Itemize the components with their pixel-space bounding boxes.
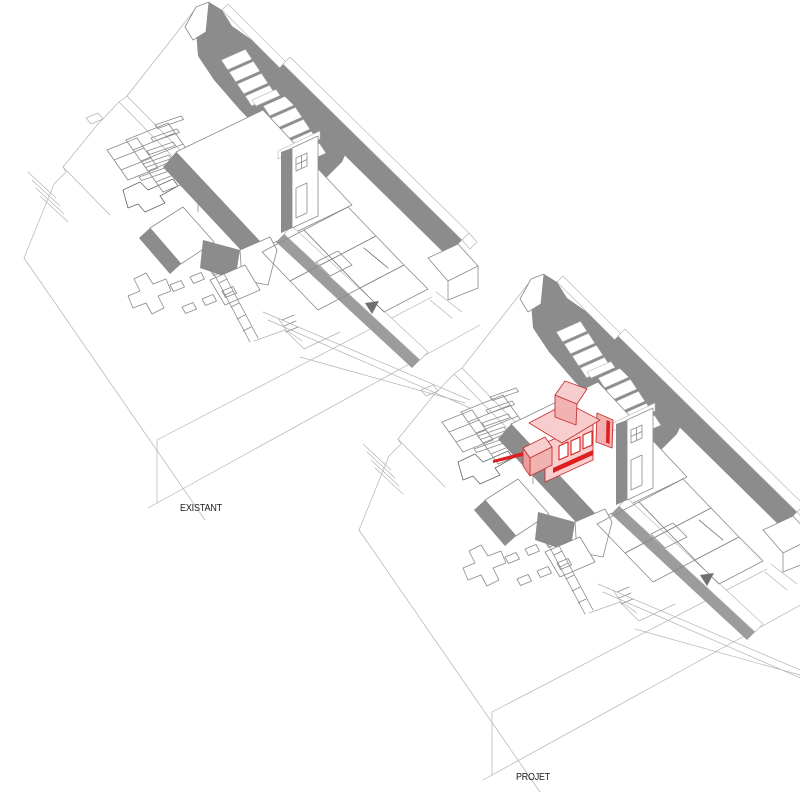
drawing-sheet: EXISTANT PROJET (0, 0, 800, 792)
axonometric-diagram: EXISTANT PROJET (0, 0, 800, 792)
drawing-existant: EXISTANT (24, 2, 480, 520)
label-existant: EXISTANT (180, 503, 222, 514)
label-projet: PROJET (516, 772, 550, 783)
